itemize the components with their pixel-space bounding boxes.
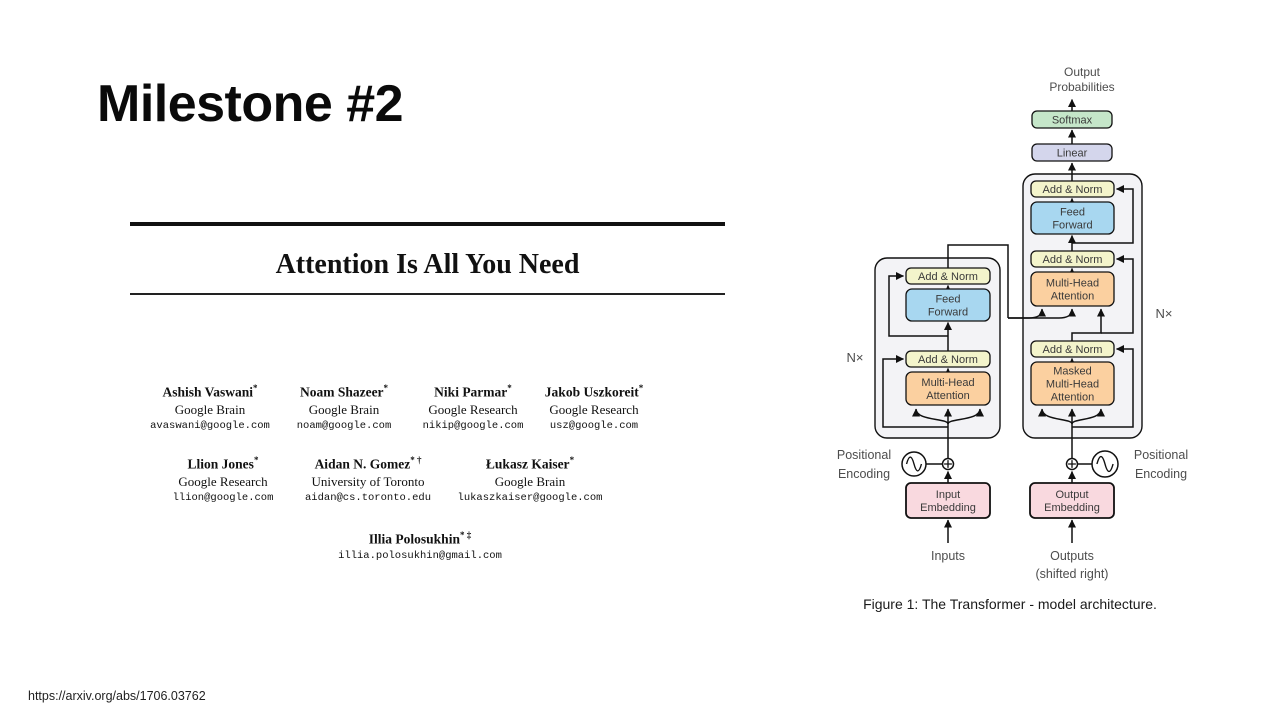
encoder-multi-head-attention-box-label: Attention <box>926 390 969 402</box>
author-name: Ashish Vaswani* <box>150 380 270 401</box>
decoder-add-norm-top-box: Add & Norm <box>1031 181 1114 197</box>
encoder-multi-head-attention-box: Multi-HeadAttention <box>906 372 990 405</box>
softmax-box: Softmax <box>1032 111 1112 128</box>
author-block: Illia Polosukhin* ‡illia.polosukhin@gmai… <box>338 527 502 565</box>
decoder-feed-forward-box-label: Forward <box>1052 219 1092 231</box>
svg-text:Positional: Positional <box>837 448 891 462</box>
input-embedding-box-label: Input <box>936 489 960 501</box>
decoder-multi-head-attention-box-label: Multi-Head <box>1046 277 1099 289</box>
author-affiliation: Google Research <box>423 401 524 418</box>
inputs-label: Inputs <box>931 549 965 563</box>
author-affiliation: Google Research <box>545 401 643 418</box>
author-email: lukaszkaiser@google.com <box>458 490 603 507</box>
positional-encoding-right-label: PositionalEncoding <box>1134 448 1188 481</box>
outputs-label: Outputs(shifted right) <box>1036 549 1109 581</box>
author-email: avaswani@google.com <box>150 418 270 435</box>
decoder-add-norm-mid-box: Add & Norm <box>1031 251 1114 267</box>
svg-text:N×: N× <box>847 350 864 365</box>
decoder-multi-head-attention-box: Multi-HeadAttention <box>1031 272 1114 306</box>
decoder-add-norm-mid-box-label: Add & Norm <box>1043 254 1103 266</box>
masked-multi-head-attention-box: MaskedMulti-HeadAttention <box>1031 362 1114 405</box>
encoder-feed-forward-box-label: Feed <box>935 293 960 305</box>
svg-text:(shifted right): (shifted right) <box>1036 567 1109 581</box>
author-name: Jakob Uszkoreit* <box>545 380 643 401</box>
author-name: Llion Jones* <box>173 452 274 473</box>
author-email: usz@google.com <box>545 418 643 435</box>
author-name: Illia Polosukhin* ‡ <box>338 527 502 548</box>
paper-top-rule <box>130 222 725 226</box>
svg-text:Probabilities: Probabilities <box>1049 80 1114 94</box>
author-affiliation: Google Research <box>173 473 274 490</box>
masked-multi-head-attention-box-label: Attention <box>1051 391 1094 403</box>
input-embedding-box-label: Embedding <box>920 502 976 514</box>
decoder-add-norm-bottom-box-label: Add & Norm <box>1043 344 1103 356</box>
author-email: nikip@google.com <box>423 418 524 435</box>
nx-right-label: N× <box>1156 306 1173 321</box>
svg-text:Encoding: Encoding <box>1135 467 1187 481</box>
linear-box: Linear <box>1032 144 1112 161</box>
positional-encoding-sine-left-icon <box>902 452 926 476</box>
decoder-add-norm-top-box-label: Add & Norm <box>1043 184 1103 196</box>
author-block: Łukasz Kaiser*Google Brainlukaszkaiser@g… <box>458 452 603 507</box>
svg-text:N×: N× <box>1156 306 1173 321</box>
decoder-feed-forward-box-label: Feed <box>1060 206 1085 218</box>
encoder-add-norm-bottom-box: Add & Norm <box>906 351 990 367</box>
encoder-container <box>875 258 1000 438</box>
softmax-box-label: Softmax <box>1052 114 1093 126</box>
author-affiliation: Google Brain <box>297 401 392 418</box>
decoder-add-norm-bottom-box: Add & Norm <box>1031 341 1114 357</box>
encoder-multi-head-attention-box-label: Multi-Head <box>921 377 974 389</box>
masked-multi-head-attention-box-label: Multi-Head <box>1046 378 1099 390</box>
author-name: Łukasz Kaiser* <box>458 452 603 473</box>
svg-text:Encoding: Encoding <box>838 467 890 481</box>
paper-title: Attention Is All You Need <box>130 248 725 282</box>
author-block: Noam Shazeer*Google Brainnoam@google.com <box>297 380 392 435</box>
author-email: noam@google.com <box>297 418 392 435</box>
output-probabilities-label: OutputProbabilities <box>1049 65 1114 94</box>
decoder-multi-head-attention-box-label: Attention <box>1051 290 1094 302</box>
author-name: Niki Parmar* <box>423 380 524 401</box>
decoder-feed-forward-box: FeedForward <box>1031 202 1114 234</box>
encoder-add-norm-top-box-label: Add & Norm <box>918 271 978 283</box>
author-block: Ashish Vaswani*Google Brainavaswani@goog… <box>150 380 270 435</box>
masked-multi-head-attention-box-label: Masked <box>1053 365 1092 377</box>
figure-caption: Figure 1: The Transformer - model archit… <box>863 596 1157 612</box>
author-email: llion@google.com <box>173 490 274 507</box>
svg-text:Outputs: Outputs <box>1050 549 1094 563</box>
input-embedding-box: InputEmbedding <box>906 483 990 518</box>
slide-title: Milestone #2 <box>97 74 403 134</box>
svg-text:Output: Output <box>1064 65 1101 79</box>
encoder-add-norm-top-box: Add & Norm <box>906 268 990 284</box>
source-url-link[interactable]: https://arxiv.org/abs/1706.03762 <box>28 689 206 703</box>
author-block: Jakob Uszkoreit*Google Researchusz@googl… <box>545 380 643 435</box>
positional-add-left-icon <box>943 459 954 470</box>
encoder-feed-forward-box-label: Forward <box>928 306 968 318</box>
encoder-feed-forward-box: FeedForward <box>906 289 990 321</box>
author-email: illia.polosukhin@gmail.com <box>338 548 502 565</box>
author-affiliation: Google Brain <box>150 401 270 418</box>
output-embedding-box: OutputEmbedding <box>1030 483 1114 518</box>
author-name: Noam Shazeer* <box>297 380 392 401</box>
author-name: Aidan N. Gomez* † <box>305 452 431 473</box>
output-embedding-box-label: Embedding <box>1044 502 1100 514</box>
transformer-figure: SoftmaxLinearAdd & NormFeedForwardAdd & … <box>820 50 1200 625</box>
author-affiliation: University of Toronto <box>305 473 431 490</box>
output-embedding-box-label: Output <box>1055 489 1088 501</box>
author-block: Aidan N. Gomez* †University of Torontoai… <box>305 452 431 507</box>
paper-title-rule <box>130 293 725 295</box>
paper-first-page: Attention Is All You Need Ashish Vaswani… <box>130 222 725 572</box>
author-email: aidan@cs.toronto.edu <box>305 490 431 507</box>
linear-box-label: Linear <box>1057 147 1088 159</box>
encoder-add-norm-bottom-box-label: Add & Norm <box>918 354 978 366</box>
author-affiliation: Google Brain <box>458 473 603 490</box>
positional-encoding-left-label: PositionalEncoding <box>837 448 891 481</box>
positional-add-right-icon <box>1067 459 1078 470</box>
svg-text:Inputs: Inputs <box>931 549 965 563</box>
nx-left-label: N× <box>847 350 864 365</box>
author-block: Llion Jones*Google Researchllion@google.… <box>173 452 274 507</box>
slide: Milestone #2 Attention Is All You Need A… <box>0 0 1280 720</box>
positional-encoding-sine-right-icon <box>1092 451 1118 477</box>
author-block: Niki Parmar*Google Researchnikip@google.… <box>423 380 524 435</box>
svg-text:Positional: Positional <box>1134 448 1188 462</box>
